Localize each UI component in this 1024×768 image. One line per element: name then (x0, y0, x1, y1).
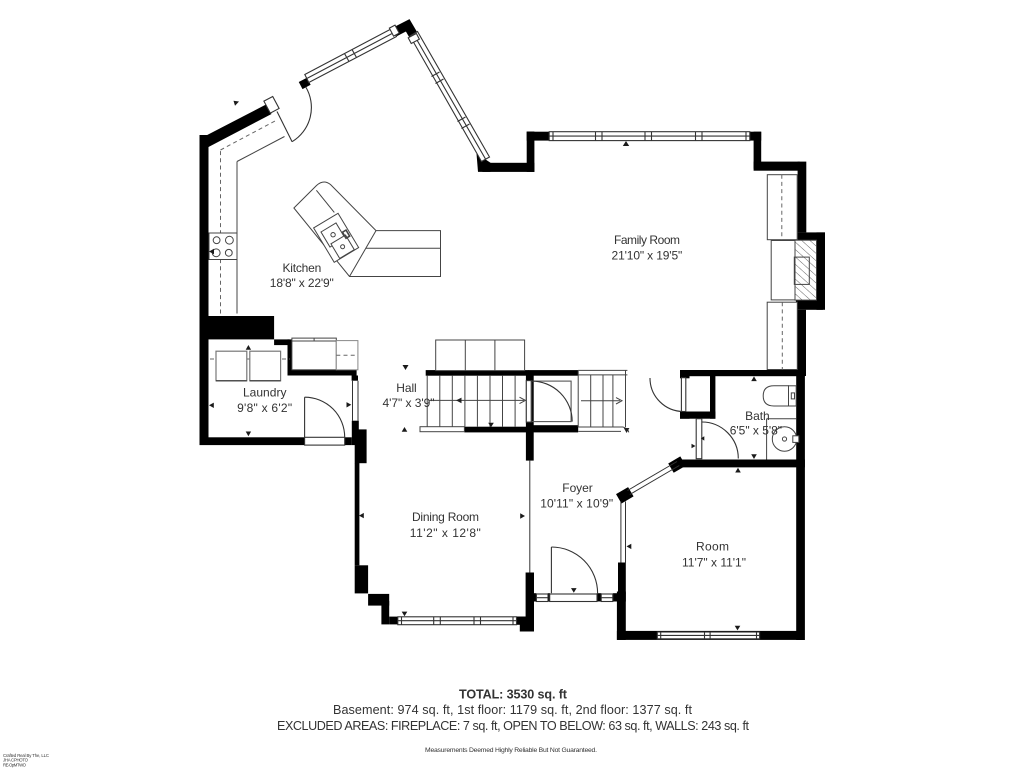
svg-text:21'10" x 19'5": 21'10" x 19'5" (612, 248, 683, 262)
svg-text:Basement: 974 sq. ft, 1st floo: Basement: 974 sq. ft, 1st floor: 1179 sq… (333, 703, 693, 717)
svg-text:11'2" x 12'8": 11'2" x 12'8" (410, 526, 481, 540)
svg-text:10'11" x 10'9": 10'11" x 10'9" (540, 497, 613, 511)
svg-text:Bath: Bath (745, 409, 770, 423)
svg-text:Room: Room (696, 540, 729, 554)
svg-text:9'8" x 6'2": 9'8" x 6'2" (237, 401, 292, 415)
svg-text:Family Room: Family Room (614, 233, 680, 247)
svg-text:Foyer: Foyer (562, 481, 592, 495)
svg-text:RE-OpMTWO: RE-OpMTWO (3, 763, 27, 768)
svg-text:Measurements Deemed Highly Rel: Measurements Deemed Highly Reliable But … (425, 747, 597, 754)
svg-text:4'7" x 3'9": 4'7" x 3'9" (383, 396, 435, 410)
svg-text:11'7" x 11'1": 11'7" x 11'1" (682, 555, 746, 569)
svg-text:Laundry: Laundry (243, 385, 287, 399)
svg-text:TOTAL: 3530 sq. ft: TOTAL: 3530 sq. ft (459, 688, 568, 702)
svg-text:6'5" x 5'8": 6'5" x 5'8" (730, 424, 782, 438)
svg-text:Kitchen: Kitchen (282, 261, 321, 275)
svg-text:Hall: Hall (396, 381, 416, 395)
svg-text:18'8" x 22'9": 18'8" x 22'9" (270, 276, 334, 290)
svg-text:EXCLUDED AREAS: FIREPLACE: 7 s: EXCLUDED AREAS: FIREPLACE: 7 sq. ft, OPE… (277, 719, 750, 733)
svg-text:Dining Room: Dining Room (412, 510, 479, 524)
